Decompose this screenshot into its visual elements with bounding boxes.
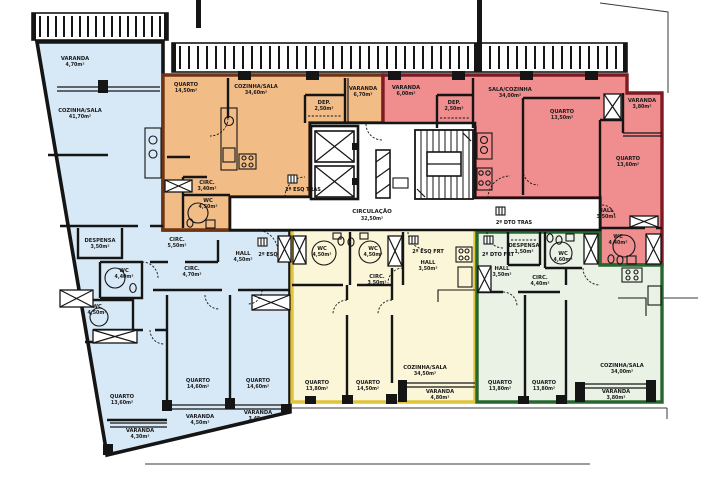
room-area: 4,50m² [313,252,332,258]
room-label: VARANDA [244,410,272,416]
unit-entry-label: 2º DTO TRAS [496,220,533,226]
room-area: 3,50m² [597,214,616,220]
room-area: 3,50m² [419,266,438,272]
room-label: CIRC. [369,274,385,280]
room-label: WC [368,246,378,252]
room-area: 13,60m² [111,400,133,406]
room-label: VARANDA [628,98,656,104]
entry-door-icon-orange [288,175,297,183]
room-area: 13,80m² [306,386,328,392]
room-label: QUARTO [356,380,381,386]
room-label: DESPENSA [84,238,115,244]
room-label: DEP. [448,100,461,106]
room-label: WC [203,198,213,204]
room-label: QUARTO [174,82,199,88]
unit-entry-label: 2º ESQ FRT [412,249,444,255]
entry-door-icon-red [496,207,505,215]
unit-entry-label: 2º DTO FRT [482,252,515,258]
room-area: 14,60m² [247,384,269,390]
staircase-icon [415,130,473,199]
room-area: 5,50m² [168,243,187,249]
room-area: 4,70m² [66,62,85,68]
room-area: 3,80m² [633,104,652,110]
room-label: HALL [421,260,437,266]
room-label: QUARTO [488,380,513,386]
party-wall-stub-right [477,0,482,43]
room-label: HALL [495,266,511,272]
room-area: 4,40m² [531,281,550,287]
room-label: VARANDA [349,86,377,92]
room-label: VARANDA [426,389,454,395]
room-area: 3,50m² [493,272,512,278]
entry-door-icon-yellow [409,236,418,244]
unit-entry-label: 2º ESQ TRAS [285,187,321,193]
room-label: COZINHA/SALA [234,84,278,90]
floor-plan: CIRCULAÇÃO 32,50m² VARANDA 4,70m² COZINH… [0,0,717,480]
room-area: 1,50m² [515,249,534,255]
unit-entry-label: 2º ESQ [258,252,277,258]
room-area: 4,70m² [183,272,202,278]
room-label: CIRC. [199,180,215,186]
room-area: 34,00m² [611,369,633,375]
room-label: WC [119,268,129,274]
room-area: 32,50m² [361,216,383,222]
room-label: CIRC. [184,266,200,272]
room-area: 14,50m² [175,88,197,94]
room-area: 3,50m² [91,244,110,250]
room-area: 34,60m² [245,90,267,96]
meter-box-icon [393,178,408,188]
room-area: 6,00m² [397,91,416,97]
room-area: 13,60m² [617,162,639,168]
room-label: QUARTO [550,109,575,115]
room-label: HALL [599,208,615,214]
room-label: WC [613,234,623,240]
room-area: 13,80m² [489,386,511,392]
room-label: VARANDA [392,85,420,91]
railing-top-right [172,43,627,72]
room-label: QUARTO [532,380,557,386]
room-label: COZINHA/SALA [58,108,102,114]
room-label: VARANDA [186,414,214,420]
room-area: 6,70m² [354,92,373,98]
room-area: 3,45m² [249,416,268,422]
duct-shaft-icon [376,150,390,198]
room-label: DESPENSA [508,243,539,249]
floor-plan-canvas: CIRCULAÇÃO 32,50m² VARANDA 4,70m² COZINH… [0,0,717,480]
room-label: COZINHA/SALA [403,365,447,371]
room-area: 4,50m² [199,204,218,210]
room-label: VARANDA [61,56,89,62]
room-area: 34,50m² [414,371,436,377]
room-label: WC [317,246,327,252]
room-label: COZINHA/SALA [600,363,644,369]
room-area: 34,00m² [499,93,521,99]
room-label: QUARTO [616,156,641,162]
party-wall-stub-left [196,0,201,28]
room-label: CIRC. [532,275,548,281]
room-area: 4,50m² [191,420,210,426]
room-label: CIRCULAÇÃO [352,208,392,215]
room-area: 14,50m² [357,386,379,392]
room-label: CIRC. [169,237,185,243]
room-label: DEP. [318,100,331,106]
entry-door-icon-blue [258,238,267,246]
room-area: 41,70m² [69,114,91,120]
room-area: 2,50m² [445,106,464,112]
room-area: 4,30m² [131,434,150,440]
room-label: VARANDA [602,389,630,395]
room-area: 13,50m² [551,115,573,121]
room-label: QUARTO [186,378,211,384]
room-area: 3,50m² [368,280,387,286]
room-area: 4,40m² [115,274,134,280]
room-area: 4,60m² [554,257,573,263]
room-area: 4,50m² [88,310,107,316]
room-label: WC [92,304,102,310]
room-label: WC [558,251,568,257]
entry-door-icon-green [484,236,493,244]
railing-top-left [32,13,168,40]
room-label: SALA/COZINHA [488,87,532,93]
room-label: QUARTO [246,378,271,384]
room-area: 4,50m² [364,252,383,258]
room-area: 13,80m² [533,386,555,392]
room-area: 4,50m² [234,257,253,263]
window-cross-icon [165,180,192,192]
room-label: VARANDA [126,428,154,434]
room-label: QUARTO [305,380,330,386]
room-area: 14,60m² [187,384,209,390]
room-label: QUARTO [110,394,135,400]
room-area: 3,40m² [198,186,217,192]
room-area: 2,50m² [315,106,334,112]
room-area: 3,80m² [607,395,626,401]
room-label: HALL [236,251,252,257]
room-area: 4,80m² [431,395,450,401]
room-area: 4,40m² [609,240,628,246]
